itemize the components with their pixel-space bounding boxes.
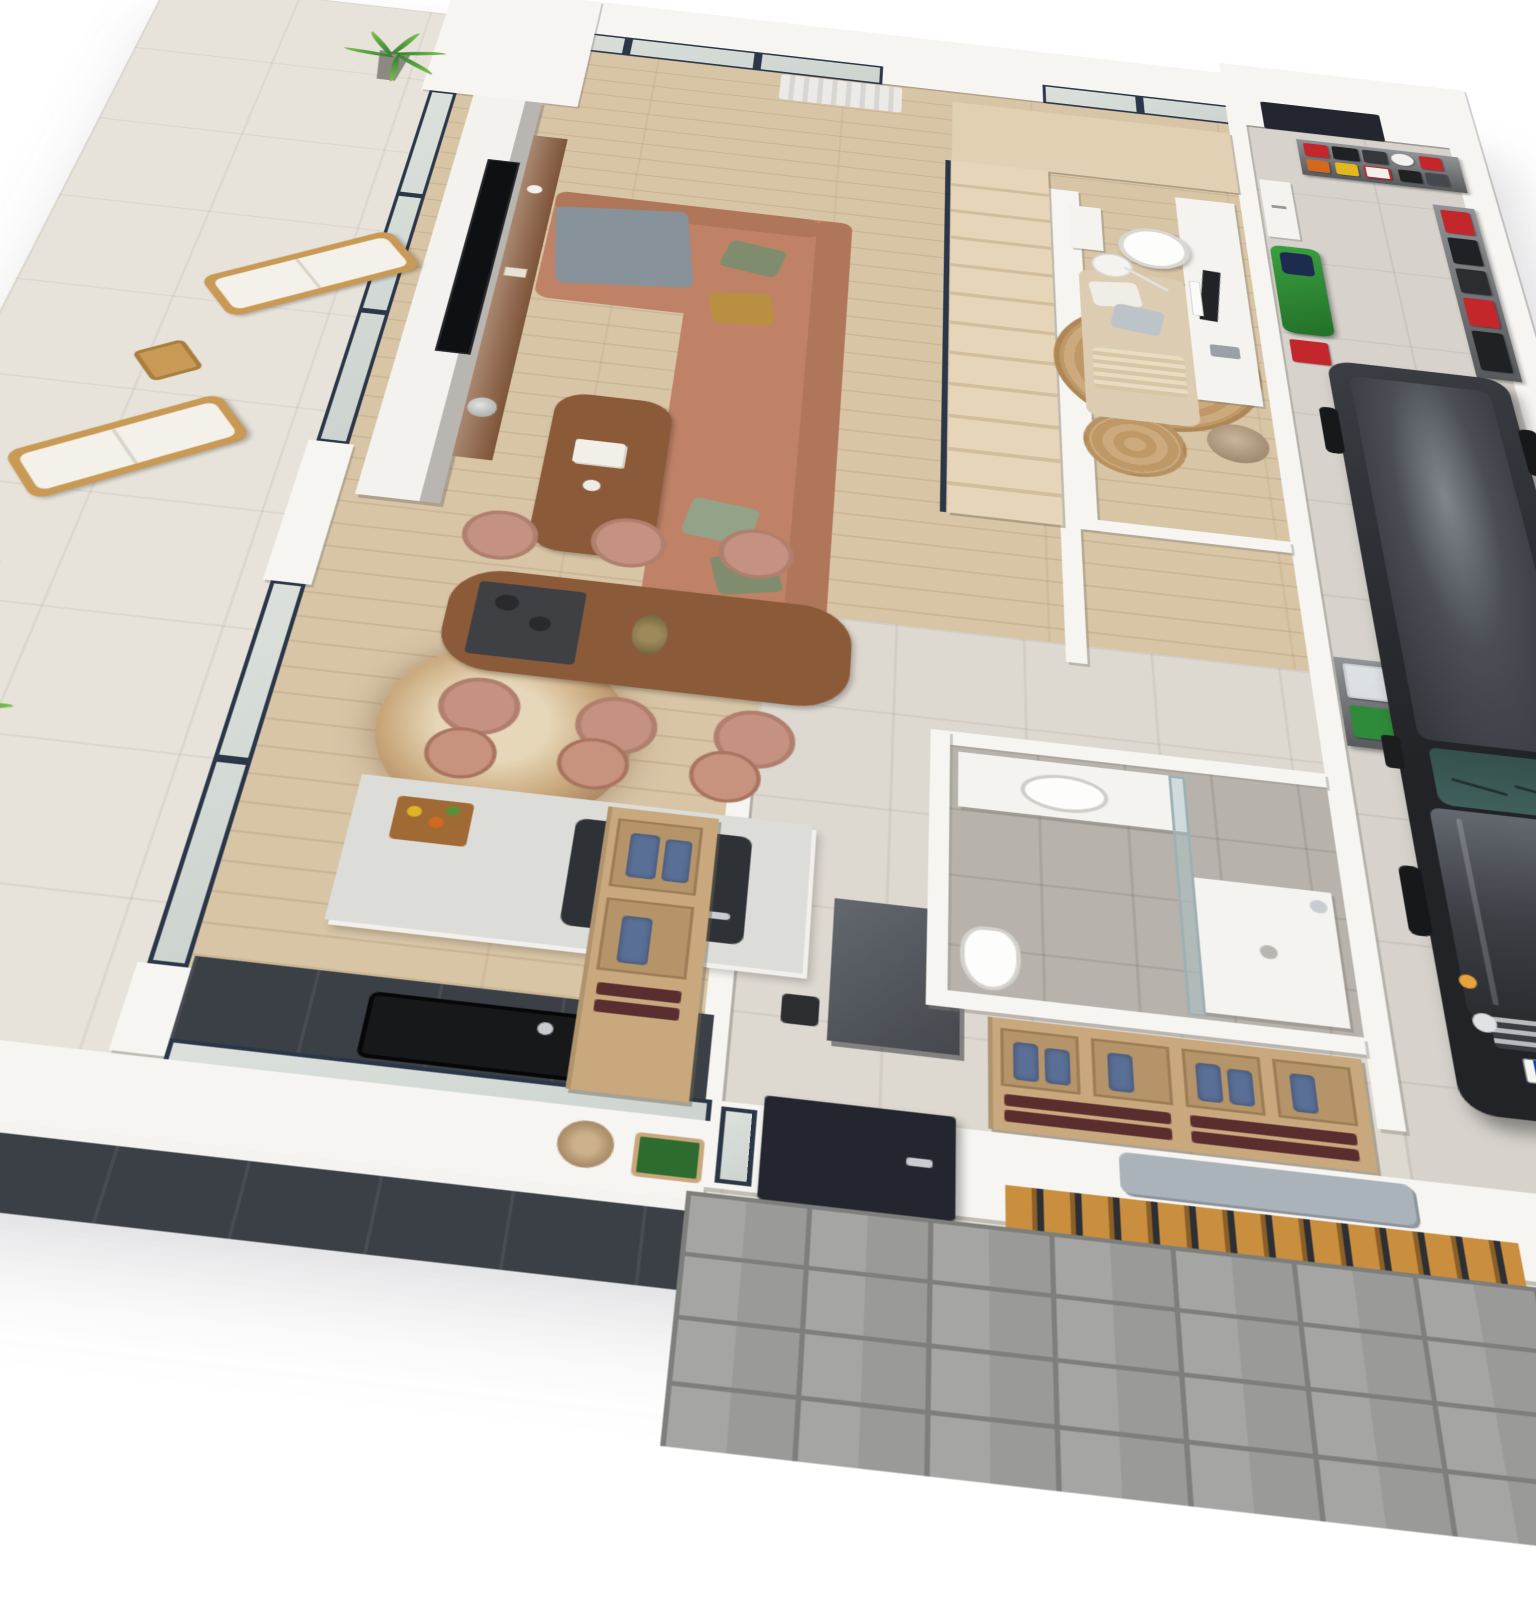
mullion: [217, 755, 248, 766]
coffee-table-cup: [582, 479, 602, 492]
fruit-orange: [427, 816, 444, 828]
cutting-board: [388, 795, 474, 847]
laptop: [1210, 344, 1241, 359]
mullion: [399, 192, 422, 199]
nook-shelf: [1069, 205, 1104, 251]
license-plate: VIZ-PEOP: [1522, 1058, 1536, 1095]
outdoor-green-plant-box: [630, 1132, 705, 1184]
coffee-machine: [780, 993, 820, 1027]
car-hood: [1429, 807, 1536, 1038]
table-runner: [464, 581, 587, 665]
wiper: [1451, 778, 1507, 797]
faucet: [536, 1021, 554, 1035]
wiper: [1515, 785, 1536, 804]
bathroom-wall-w: [926, 729, 951, 1007]
staircase: [947, 161, 1063, 526]
mower-grass-bag: [1279, 251, 1315, 277]
red-storage-box: [1289, 339, 1332, 366]
boiler-handle: [1271, 205, 1286, 210]
gray-throw-blanket: [555, 206, 693, 288]
floor-plan: VIZ-PEOP: [0, 0, 1536, 1566]
wheel: [1517, 429, 1536, 478]
door-sidelight: [714, 1106, 757, 1186]
shower-tray: [1191, 877, 1351, 1029]
mullion: [622, 39, 633, 55]
fruit-lemon: [406, 805, 423, 817]
daybed-striped-blanket: [1092, 347, 1188, 399]
daybed-pillow-gray: [1110, 303, 1165, 337]
pillow-mustard: [709, 292, 775, 325]
mullion: [1135, 97, 1145, 113]
mullion: [361, 308, 386, 315]
shower-drain: [1259, 944, 1279, 960]
door-handle: [906, 1157, 933, 1168]
vanity-sink: [1020, 771, 1109, 818]
left-corner-wall: [421, 0, 602, 107]
coffee-table-books: [572, 439, 626, 468]
dried-flower-centerpiece: [629, 613, 670, 657]
scene: VIZ-PEOP: [0, 0, 1536, 983]
fruit-lime: [445, 805, 460, 816]
daybed: [1079, 268, 1201, 428]
mullion: [753, 53, 763, 69]
